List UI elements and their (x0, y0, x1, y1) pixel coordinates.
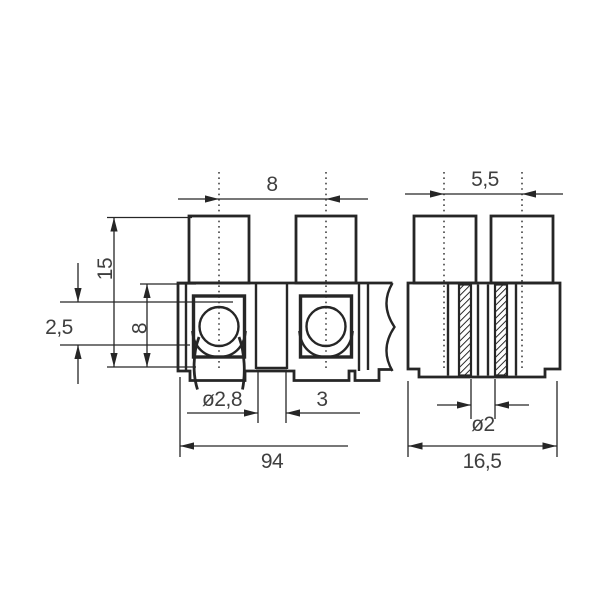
dim-length-label: 94 (261, 450, 284, 473)
dimension-drawing-page: 8 15 8 2,5 (0, 0, 600, 600)
arrowhead (543, 442, 557, 449)
arrowhead (522, 190, 536, 197)
arrowhead (409, 442, 423, 449)
dim-pitch: 8 (178, 173, 368, 203)
dim-width-label: 16,5 (463, 450, 502, 473)
dim-screw-hole: ø2 (437, 379, 529, 436)
dim-wire-hole-label: ø2,8 (202, 388, 242, 411)
wire-opening (301, 296, 352, 357)
dim-hole-offset-label: 3 (316, 388, 327, 411)
terminal-cell-1 (192, 296, 245, 390)
arrowhead (143, 284, 150, 298)
dim-total-height-label: 15 (94, 258, 117, 280)
arrowhead (286, 409, 300, 416)
dim-screw-spacing: 5,5 (405, 168, 563, 198)
arrowhead (180, 442, 194, 449)
terminal-block-drawing: 8 15 8 2,5 (0, 0, 600, 600)
dim-screw-hole-label: ø2 (471, 413, 495, 436)
dim-pitch-label: 8 (266, 173, 277, 196)
arrowhead (326, 195, 340, 202)
dim-screw-spacing-label: 5,5 (471, 168, 499, 191)
arrowhead (457, 401, 471, 408)
arrowhead (143, 353, 150, 367)
terminal-cell-2 (299, 296, 352, 357)
front-view: 8 15 8 2,5 (45, 172, 394, 473)
dim-hole-offset: 3 (286, 388, 360, 417)
arrowhead (74, 345, 81, 359)
arrowhead (495, 401, 509, 408)
dim-body-height-label: 8 (129, 323, 152, 334)
threaded-section (495, 285, 507, 376)
arrowhead (74, 288, 81, 302)
side-view: 5,5 ø2 16,5 (405, 168, 563, 473)
wire-opening (194, 296, 245, 357)
break-line (386, 283, 394, 371)
arrowhead (244, 409, 258, 416)
screw-tower (414, 216, 476, 283)
arrowhead (430, 190, 444, 197)
arrowhead (205, 195, 219, 202)
arrowhead (110, 218, 117, 232)
arrowhead (110, 353, 117, 367)
side-body-outline (408, 283, 560, 377)
threaded-section (459, 285, 471, 376)
dim-clamp-depth-label: 2,5 (45, 316, 73, 339)
